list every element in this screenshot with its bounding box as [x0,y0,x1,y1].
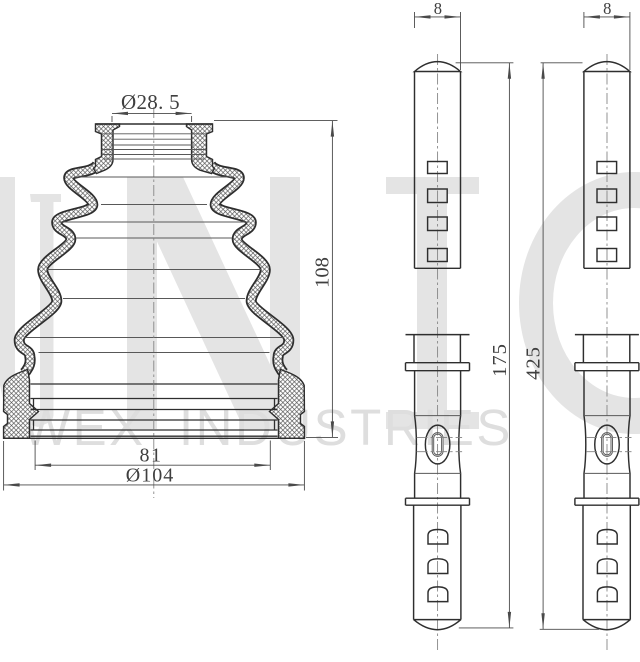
svg-text:8: 8 [434,0,442,18]
svg-text:108: 108 [312,257,334,288]
svg-text:WEX INDUSTRIES: WEX INDUSTRIES [22,399,513,456]
svg-text:81: 81 [140,445,163,467]
svg-text:Ø104: Ø104 [126,465,174,487]
svg-text:175: 175 [489,343,511,377]
svg-text:425: 425 [523,346,545,380]
svg-text:8: 8 [603,0,611,18]
svg-text:Ø28. 5: Ø28. 5 [121,90,180,114]
